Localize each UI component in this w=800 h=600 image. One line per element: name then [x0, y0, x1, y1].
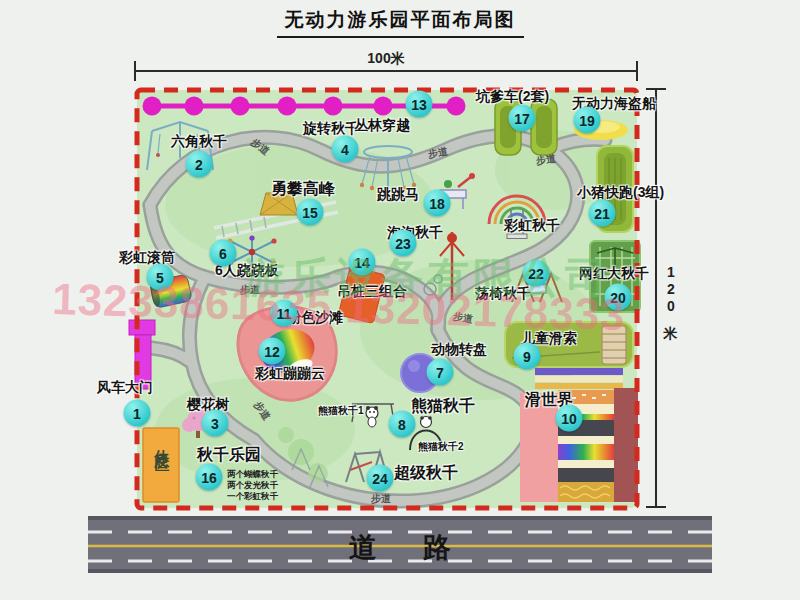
badge-12: 12: [259, 338, 286, 365]
label-peak-climbing: 勇攀高峰: [271, 179, 335, 200]
badge-10: 10: [556, 405, 583, 432]
dimension-height-label: 120米: [662, 264, 680, 316]
label-rotating-swing: 旋转秋千: [303, 120, 359, 138]
path-label: 步道: [371, 492, 391, 506]
badge-7: 7: [427, 359, 454, 386]
label-rainbow-swing: 彩虹秋千: [504, 217, 560, 235]
road-label: 道路: [88, 529, 712, 567]
label-kengdie-car: 坑爹车(2套): [476, 88, 549, 106]
label-hexagon-swing: 六角秋千: [171, 133, 227, 151]
badge-15: 15: [297, 199, 324, 226]
label-jungle-crossing: 丛林穿越: [354, 117, 410, 135]
label-super-swing: 超级秋千: [394, 463, 458, 484]
label-rainbow-bouncing-cloud: 彩虹蹦蹦云: [255, 365, 325, 383]
badge-21: 21: [589, 200, 616, 227]
badge-13: 13: [406, 91, 433, 118]
slide-world-icon: [520, 368, 638, 502]
label-panda-swing: 熊猫秋千: [411, 396, 475, 417]
badge-8: 8: [389, 411, 416, 438]
badge-1: 1: [124, 400, 151, 427]
badge-6: 6: [210, 240, 237, 267]
badge-18: 18: [424, 190, 451, 217]
park-layout-screenshot: { "title": "无动力游乐园平面布局图", "dimensions": …: [0, 0, 800, 600]
label-windmill-gate: 风车大门: [97, 379, 153, 397]
dimension-width-label: 100米: [135, 50, 637, 68]
label-animal-turntable: 动物转盘: [431, 341, 487, 359]
label-piggy-run: 小猪快跑(3组): [577, 184, 664, 202]
badge-17: 17: [509, 105, 536, 132]
badge-24: 24: [367, 465, 394, 492]
badge-16: 16: [196, 464, 223, 491]
badge-3: 3: [202, 410, 229, 437]
rest-area-label: 休息区: [152, 437, 171, 449]
badge-19: 19: [574, 107, 601, 134]
page-title: 无动力游乐园平面布局图: [0, 7, 800, 38]
badge-9: 9: [514, 343, 541, 370]
path-label: 步道: [535, 152, 557, 169]
badge-2: 2: [186, 151, 213, 178]
label-panda-swing-2: 熊猫秋千2: [418, 440, 464, 454]
swing-park-note-3: 一个彩虹秋千: [227, 491, 278, 503]
label-jumping-horse: 跳跳马: [377, 186, 419, 204]
label-panda-swing-1: 熊猫秋千1: [318, 404, 364, 418]
badge-4: 4: [332, 136, 359, 163]
